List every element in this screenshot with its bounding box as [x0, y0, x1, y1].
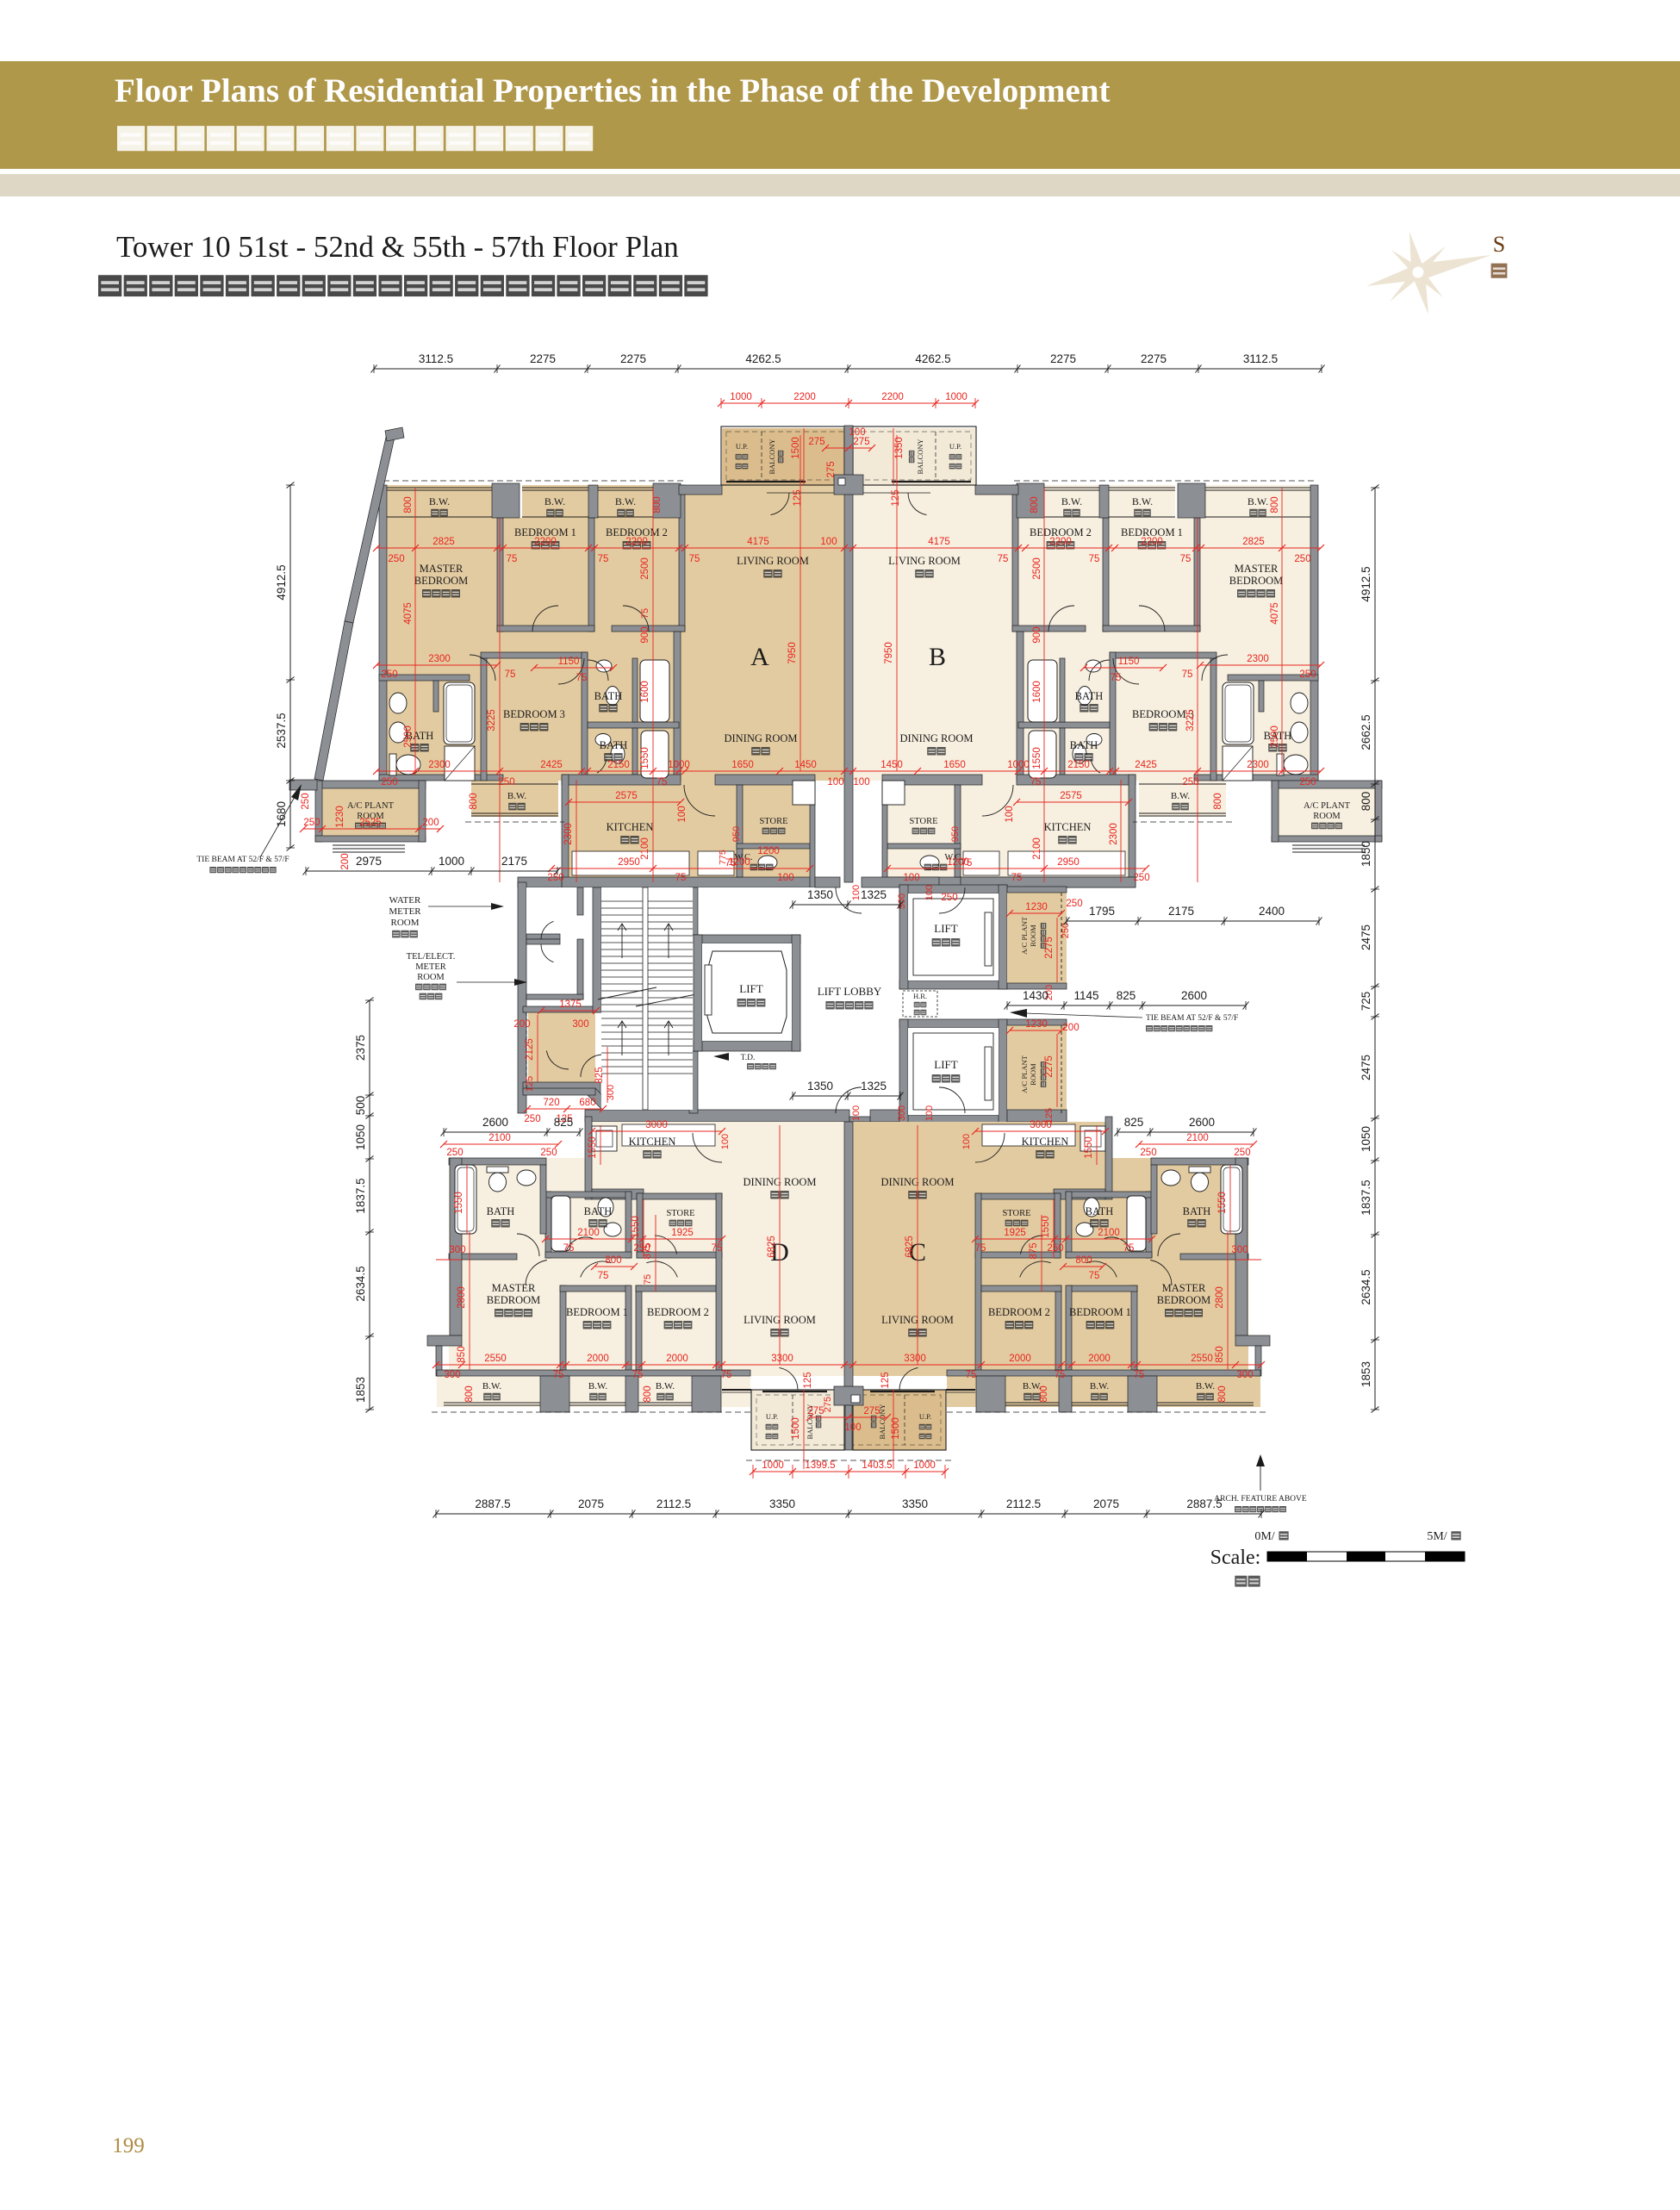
- svg-text:BATH: BATH: [600, 739, 628, 751]
- svg-text:275: 275: [807, 1406, 824, 1416]
- svg-text:250: 250: [381, 777, 397, 788]
- svg-text:100: 100: [853, 777, 869, 788]
- svg-text:1000: 1000: [913, 1460, 936, 1471]
- svg-text:800: 800: [469, 793, 479, 809]
- svg-text:75: 75: [966, 1370, 977, 1380]
- svg-text:6825: 6825: [905, 1236, 915, 1258]
- svg-text:1550: 1550: [1084, 1136, 1094, 1159]
- svg-text:1925: 1925: [1004, 1228, 1026, 1238]
- svg-text:75: 75: [598, 1271, 609, 1281]
- svg-text:75: 75: [1111, 673, 1122, 683]
- svg-text:LIFT LOBBY: LIFT LOBBY: [818, 985, 882, 998]
- svg-text:2075: 2075: [1093, 1497, 1119, 1510]
- svg-text:B.W.: B.W.: [1171, 791, 1190, 801]
- svg-text:1230: 1230: [1025, 902, 1048, 912]
- svg-text:100: 100: [820, 537, 837, 547]
- svg-text:2275: 2275: [620, 352, 646, 365]
- svg-text:100: 100: [677, 806, 688, 822]
- svg-text:2300: 2300: [1247, 760, 1269, 770]
- svg-text:ROOM: ROOM: [417, 973, 445, 982]
- svg-text:ARCH. FEATURE ABOVE: ARCH. FEATURE ABOVE: [1214, 1495, 1307, 1503]
- svg-text:7950: 7950: [787, 642, 798, 664]
- svg-text:4912.5: 4912.5: [275, 564, 288, 600]
- svg-text:250: 250: [547, 873, 563, 883]
- svg-text:0M/: 0M/: [1254, 1530, 1274, 1543]
- svg-text:75: 75: [675, 873, 687, 883]
- svg-text:250: 250: [1299, 669, 1316, 680]
- svg-text:2100: 2100: [1032, 837, 1042, 860]
- svg-text:250: 250: [381, 669, 397, 680]
- svg-text:1399.5: 1399.5: [805, 1460, 835, 1471]
- svg-text:3350: 3350: [769, 1497, 795, 1510]
- svg-text:2634.5: 2634.5: [354, 1266, 367, 1301]
- svg-text:1837.5: 1837.5: [354, 1178, 367, 1213]
- svg-text:BATH: BATH: [594, 690, 623, 702]
- svg-text:B.W.: B.W.: [656, 1381, 675, 1391]
- svg-text:BATH: BATH: [1086, 1205, 1114, 1217]
- svg-text:BATH: BATH: [1183, 1205, 1211, 1217]
- svg-text:75: 75: [721, 1370, 732, 1380]
- svg-text:T.D.: T.D.: [741, 1054, 756, 1062]
- svg-text:300: 300: [449, 1245, 465, 1255]
- svg-text:75: 75: [553, 1370, 564, 1380]
- svg-text:1853: 1853: [1360, 1361, 1372, 1387]
- svg-text:U.P.: U.P.: [919, 1412, 931, 1421]
- svg-text:Scale:: Scale:: [1210, 1547, 1261, 1569]
- svg-text:2825: 2825: [432, 537, 455, 547]
- svg-text:1000: 1000: [1007, 760, 1030, 770]
- svg-text:199: 199: [112, 2134, 145, 2157]
- svg-text:1150: 1150: [1118, 657, 1140, 667]
- svg-text:125: 125: [803, 1372, 813, 1388]
- svg-text:300: 300: [897, 1105, 907, 1121]
- svg-text:2887.5: 2887.5: [475, 1497, 510, 1510]
- svg-text:250: 250: [388, 554, 404, 564]
- svg-text:1500: 1500: [891, 1417, 901, 1440]
- svg-text:B.W.: B.W.: [1196, 1381, 1215, 1391]
- svg-text:825: 825: [1124, 1116, 1144, 1129]
- svg-text:B.W.: B.W.: [1090, 1381, 1109, 1391]
- svg-text:1050: 1050: [354, 1124, 367, 1150]
- svg-text:200: 200: [340, 853, 351, 869]
- svg-text:ROOM: ROOM: [390, 918, 419, 928]
- svg-text:B.W.: B.W.: [544, 495, 565, 507]
- svg-text:75: 75: [1123, 1243, 1135, 1254]
- svg-text:B.W.: B.W.: [1061, 495, 1082, 507]
- svg-text:100: 100: [961, 1134, 972, 1149]
- svg-text:1000: 1000: [762, 1460, 784, 1471]
- svg-text:2100: 2100: [577, 1228, 600, 1238]
- svg-text:BEDROOM: BEDROOM: [1229, 575, 1284, 587]
- svg-text:1403.5: 1403.5: [862, 1460, 892, 1471]
- svg-text:275: 275: [826, 461, 837, 477]
- svg-text:BALCONY: BALCONY: [768, 439, 776, 474]
- svg-text:725: 725: [1360, 992, 1372, 1012]
- svg-text:250: 250: [301, 793, 311, 809]
- svg-text:300: 300: [572, 1019, 588, 1030]
- svg-text:LIFT: LIFT: [934, 922, 958, 935]
- svg-text:2950: 2950: [1057, 857, 1080, 868]
- svg-text:900: 900: [1032, 626, 1042, 643]
- svg-text:1680: 1680: [275, 801, 288, 827]
- svg-text:200: 200: [422, 818, 439, 828]
- svg-text:2475: 2475: [1360, 1055, 1372, 1080]
- svg-text:2112.5: 2112.5: [1006, 1497, 1041, 1510]
- svg-text:2500: 2500: [403, 725, 414, 748]
- svg-text:DINING ROOM: DINING ROOM: [724, 732, 797, 744]
- svg-text:250: 250: [1066, 899, 1082, 909]
- svg-text:2825: 2825: [1242, 537, 1265, 547]
- svg-text:125: 125: [1044, 1108, 1055, 1124]
- svg-text:800: 800: [643, 1385, 653, 1402]
- svg-text:STORE: STORE: [1002, 1209, 1030, 1218]
- svg-text:2537.5: 2537.5: [275, 713, 288, 748]
- svg-text:300: 300: [444, 1370, 460, 1380]
- svg-text:Tower 10 51st - 52nd & 55th -: Tower 10 51st - 52nd & 55th - 57th Floor…: [116, 230, 679, 264]
- svg-text:4075: 4075: [403, 602, 414, 625]
- svg-text:1550: 1550: [1032, 747, 1042, 769]
- svg-text:875: 875: [1029, 1242, 1039, 1259]
- svg-text:1925: 1925: [671, 1228, 694, 1238]
- svg-text:800: 800: [1213, 793, 1223, 809]
- svg-text:1200: 1200: [757, 846, 780, 856]
- svg-text:2800: 2800: [457, 1286, 467, 1309]
- svg-text:950: 950: [950, 826, 961, 842]
- svg-text:100: 100: [720, 1134, 731, 1149]
- svg-text:1550: 1550: [454, 1192, 464, 1214]
- svg-text:3225: 3225: [1185, 709, 1196, 731]
- svg-text:250: 250: [1299, 777, 1316, 788]
- svg-text:2275: 2275: [1044, 937, 1055, 959]
- svg-text:75: 75: [1089, 1271, 1100, 1281]
- svg-text:100: 100: [827, 777, 843, 788]
- svg-text:2400: 2400: [1259, 905, 1285, 918]
- svg-text:BEDROOM 2: BEDROOM 2: [988, 1306, 1050, 1318]
- svg-text:250: 250: [303, 818, 320, 828]
- svg-text:2300: 2300: [1109, 823, 1119, 845]
- svg-text:LIVING ROOM: LIVING ROOM: [888, 555, 961, 567]
- svg-text:2100: 2100: [640, 837, 650, 860]
- svg-text:B: B: [929, 643, 946, 671]
- svg-text:125: 125: [793, 489, 803, 506]
- svg-text:1550: 1550: [1041, 1216, 1051, 1238]
- svg-text:800: 800: [464, 1385, 475, 1402]
- svg-text:950: 950: [731, 826, 742, 842]
- svg-text:250: 250: [524, 1114, 540, 1124]
- svg-text:2575: 2575: [615, 791, 638, 801]
- svg-text:2200: 2200: [793, 392, 816, 402]
- svg-text:2375: 2375: [354, 1035, 367, 1061]
- svg-text:ROOM: ROOM: [1029, 924, 1037, 947]
- svg-text:TIE BEAM AT 52/F & 57/F: TIE BEAM AT 52/F & 57/F: [196, 856, 289, 864]
- svg-text:800: 800: [605, 1255, 621, 1266]
- svg-text:BEDROOM 1: BEDROOM 1: [566, 1306, 628, 1318]
- svg-text:2575: 2575: [1060, 791, 1082, 801]
- svg-text:TIE BEAM AT 52/F & 57/F: TIE BEAM AT 52/F & 57/F: [1146, 1014, 1238, 1023]
- svg-text:75: 75: [725, 858, 737, 868]
- svg-text:4075: 4075: [1270, 602, 1280, 625]
- svg-text:250: 250: [446, 1148, 463, 1158]
- svg-text:1350: 1350: [807, 1080, 833, 1093]
- svg-text:A/C PLANT: A/C PLANT: [347, 801, 395, 811]
- svg-text:250: 250: [1133, 873, 1149, 883]
- svg-text:MASTER: MASTER: [1235, 563, 1279, 575]
- svg-text:250: 250: [1140, 1148, 1156, 1158]
- svg-text:2600: 2600: [482, 1116, 508, 1129]
- svg-text:800: 800: [1039, 1385, 1049, 1402]
- svg-text:100: 100: [924, 1105, 935, 1121]
- svg-text:BEDROOM: BEDROOM: [487, 1294, 541, 1306]
- svg-text:6825: 6825: [767, 1236, 777, 1258]
- svg-text:850: 850: [457, 1346, 467, 1362]
- svg-text:2100: 2100: [1186, 1133, 1209, 1143]
- svg-text:A/C PLANT: A/C PLANT: [1304, 801, 1351, 811]
- svg-text:2200: 2200: [534, 537, 557, 547]
- svg-text:75: 75: [598, 554, 609, 564]
- svg-text:A: A: [750, 643, 769, 671]
- svg-text:2200: 2200: [1141, 537, 1163, 547]
- svg-text:75: 75: [1030, 777, 1042, 788]
- svg-text:1000: 1000: [439, 855, 464, 868]
- svg-text:500: 500: [354, 1096, 367, 1116]
- svg-text:BEDROOM: BEDROOM: [414, 575, 469, 587]
- svg-text:1000: 1000: [945, 392, 968, 402]
- svg-text:B.W.: B.W.: [507, 791, 526, 801]
- svg-text:3000: 3000: [645, 1120, 668, 1130]
- svg-text:A/C PLANT: A/C PLANT: [1020, 1055, 1029, 1093]
- svg-text:BATH: BATH: [487, 1205, 515, 1217]
- svg-text:125: 125: [525, 1076, 535, 1092]
- svg-text:BEDROOM 3: BEDROOM 3: [503, 708, 565, 720]
- svg-text:75: 75: [656, 777, 668, 788]
- svg-text:300: 300: [1231, 1245, 1248, 1255]
- svg-text:1500: 1500: [791, 1417, 801, 1440]
- svg-text:250: 250: [941, 893, 957, 903]
- svg-text:2275: 2275: [1050, 352, 1076, 365]
- svg-text:2975: 2975: [356, 855, 382, 868]
- svg-text:680: 680: [579, 1098, 595, 1108]
- svg-text:875: 875: [643, 1242, 653, 1259]
- svg-text:1550: 1550: [631, 1216, 641, 1238]
- svg-text:S: S: [1493, 232, 1505, 257]
- svg-text:3300: 3300: [771, 1354, 793, 1364]
- svg-text:3225: 3225: [487, 709, 497, 731]
- svg-text:800: 800: [1075, 1255, 1092, 1266]
- svg-text:2500: 2500: [640, 557, 650, 580]
- svg-text:MASTER: MASTER: [492, 1282, 536, 1294]
- svg-text:2887.5: 2887.5: [1186, 1497, 1222, 1510]
- svg-text:2275: 2275: [530, 352, 556, 365]
- svg-text:1850: 1850: [1360, 841, 1372, 867]
- svg-text:U.P.: U.P.: [949, 442, 961, 451]
- svg-text:BATH: BATH: [584, 1205, 613, 1217]
- svg-text:KITCHEN: KITCHEN: [607, 821, 654, 833]
- svg-text:75: 75: [1182, 669, 1193, 680]
- svg-text:800: 800: [1217, 1385, 1228, 1402]
- svg-text:A/C PLANT: A/C PLANT: [1020, 916, 1029, 954]
- svg-text:2500: 2500: [1270, 725, 1280, 748]
- svg-text:1000: 1000: [730, 392, 752, 402]
- svg-text:825: 825: [554, 1116, 574, 1129]
- svg-text:2000: 2000: [1009, 1354, 1031, 1364]
- svg-text:METER: METER: [415, 962, 446, 972]
- svg-text:1375: 1375: [559, 999, 582, 1010]
- svg-text:1500: 1500: [791, 437, 801, 459]
- svg-text:2000: 2000: [666, 1354, 688, 1364]
- svg-text:2600: 2600: [1181, 989, 1207, 1002]
- svg-text:2550: 2550: [1191, 1354, 1213, 1364]
- svg-text:2000: 2000: [1088, 1354, 1111, 1364]
- svg-text:2525: 2525: [359, 818, 382, 828]
- svg-text:METER: METER: [389, 906, 421, 917]
- svg-text:BALCONY: BALCONY: [916, 439, 924, 474]
- svg-text:75: 75: [507, 554, 518, 564]
- svg-text:800: 800: [652, 496, 663, 513]
- svg-text:2475: 2475: [1360, 924, 1372, 950]
- svg-text:B.W.: B.W.: [429, 495, 450, 507]
- svg-text:1837.5: 1837.5: [1360, 1180, 1372, 1215]
- svg-text:DINING ROOM: DINING ROOM: [899, 732, 973, 744]
- svg-text:3112.5: 3112.5: [419, 352, 453, 365]
- svg-text:275: 275: [863, 1406, 880, 1416]
- svg-text:1325: 1325: [861, 1080, 887, 1093]
- svg-text:LIFT: LIFT: [934, 1058, 958, 1071]
- svg-text:75: 75: [563, 1243, 575, 1254]
- svg-text:1450: 1450: [794, 760, 817, 770]
- svg-text:2300: 2300: [428, 760, 451, 770]
- svg-text:2200: 2200: [625, 537, 648, 547]
- svg-text:75: 75: [712, 1243, 723, 1254]
- svg-text:BEDROOM 1: BEDROOM 1: [1069, 1306, 1131, 1318]
- svg-text:2150: 2150: [607, 760, 630, 770]
- svg-text:H.R.: H.R.: [913, 992, 927, 1000]
- svg-text:125: 125: [880, 1372, 891, 1388]
- svg-text:75: 75: [1134, 1370, 1145, 1380]
- svg-text:2550: 2550: [484, 1354, 507, 1364]
- svg-text:1795: 1795: [1089, 905, 1115, 918]
- svg-text:MASTER: MASTER: [420, 563, 464, 575]
- svg-text:1853: 1853: [354, 1377, 367, 1403]
- svg-text:75: 75: [998, 554, 1009, 564]
- svg-text:75: 75: [640, 608, 650, 619]
- svg-text:STORE: STORE: [909, 817, 937, 826]
- svg-text:3112.5: 3112.5: [1243, 352, 1278, 365]
- svg-text:1230: 1230: [335, 806, 345, 828]
- svg-text:1450: 1450: [880, 760, 903, 770]
- svg-text:100: 100: [777, 873, 793, 883]
- svg-text:TEL/ELECT.: TEL/ELECT.: [407, 952, 456, 962]
- svg-text:1550: 1550: [588, 1136, 598, 1159]
- svg-text:STORE: STORE: [759, 817, 787, 826]
- svg-text:BATH: BATH: [1075, 690, 1104, 702]
- svg-text:2112.5: 2112.5: [656, 1497, 691, 1510]
- svg-text:275: 275: [823, 1397, 833, 1412]
- svg-text:75: 75: [505, 669, 516, 680]
- svg-text:1600: 1600: [640, 681, 650, 703]
- svg-text:75: 75: [1180, 554, 1192, 564]
- svg-text:MASTER: MASTER: [1162, 1282, 1206, 1294]
- svg-text:1350: 1350: [894, 437, 905, 459]
- svg-text:800: 800: [1360, 792, 1372, 812]
- svg-text:75: 75: [975, 1243, 986, 1254]
- svg-text:B.W.: B.W.: [588, 1381, 607, 1391]
- svg-text:U.P.: U.P.: [736, 442, 748, 451]
- svg-text:300: 300: [1236, 1370, 1253, 1380]
- svg-text:250: 250: [540, 1148, 557, 1158]
- svg-text:2800: 2800: [1215, 1286, 1225, 1309]
- svg-text:75: 75: [1089, 554, 1100, 564]
- svg-text:250: 250: [1047, 1243, 1063, 1254]
- svg-text:1550: 1550: [1217, 1192, 1228, 1214]
- svg-text:B.W.: B.W.: [1248, 495, 1268, 507]
- svg-text:3300: 3300: [904, 1354, 926, 1364]
- svg-text:4912.5: 4912.5: [1360, 566, 1372, 601]
- svg-text:100: 100: [849, 427, 865, 438]
- svg-text:1650: 1650: [943, 760, 966, 770]
- svg-text:250: 250: [1234, 1148, 1250, 1158]
- svg-text:2200: 2200: [1049, 537, 1072, 547]
- svg-text:2125: 2125: [525, 1038, 535, 1061]
- svg-text:1430: 1430: [1023, 989, 1048, 1002]
- svg-text:250: 250: [1182, 777, 1198, 788]
- svg-text:1325: 1325: [861, 888, 887, 901]
- svg-text:LIFT: LIFT: [739, 982, 763, 995]
- svg-text:2175: 2175: [1168, 905, 1194, 918]
- svg-text:100: 100: [844, 1422, 861, 1433]
- svg-text:2300: 2300: [428, 654, 451, 664]
- svg-text:WATER: WATER: [389, 895, 421, 906]
- svg-text:800: 800: [1030, 496, 1040, 513]
- svg-text:1650: 1650: [731, 760, 754, 770]
- svg-text:2100: 2100: [488, 1133, 511, 1143]
- svg-text:800: 800: [1270, 496, 1280, 513]
- svg-text:2425: 2425: [540, 760, 563, 770]
- svg-text:1145: 1145: [1073, 989, 1098, 1002]
- svg-text:BEDROOM 2: BEDROOM 2: [647, 1306, 709, 1318]
- svg-text:850: 850: [1215, 1346, 1225, 1362]
- svg-text:75: 75: [961, 858, 973, 868]
- svg-text:ROOM: ROOM: [1313, 812, 1341, 821]
- svg-text:B.W.: B.W.: [615, 495, 636, 507]
- svg-text:100: 100: [924, 885, 935, 900]
- svg-text:720: 720: [543, 1098, 559, 1108]
- svg-text:1000: 1000: [668, 760, 690, 770]
- svg-text:825: 825: [1117, 989, 1136, 1002]
- svg-text:825: 825: [594, 1067, 605, 1083]
- svg-text:7950: 7950: [884, 642, 894, 664]
- svg-text:B.W.: B.W.: [482, 1381, 501, 1391]
- svg-text:Floor Plans of Residential Pro: Floor Plans of Residential Properties in…: [115, 72, 1110, 109]
- svg-text:1600: 1600: [1032, 681, 1042, 703]
- svg-text:KITCHEN: KITCHEN: [1044, 821, 1092, 833]
- svg-text:75: 75: [643, 1274, 653, 1285]
- svg-text:200: 200: [513, 1019, 530, 1030]
- svg-text:800: 800: [403, 496, 414, 513]
- svg-text:75: 75: [1011, 873, 1023, 883]
- svg-text:2275: 2275: [1141, 352, 1167, 365]
- svg-text:900: 900: [640, 626, 650, 643]
- svg-text:B.W.: B.W.: [1132, 495, 1153, 507]
- svg-text:275: 275: [808, 437, 824, 447]
- svg-text:KITCHEN: KITCHEN: [1022, 1136, 1069, 1148]
- svg-text:4175: 4175: [747, 537, 769, 547]
- svg-text:250: 250: [1294, 554, 1310, 564]
- svg-text:2634.5: 2634.5: [1360, 1269, 1372, 1304]
- svg-text:2950: 2950: [618, 857, 640, 868]
- svg-text:100: 100: [1005, 806, 1015, 822]
- svg-text:100: 100: [903, 873, 919, 883]
- svg-text:BATH: BATH: [1070, 739, 1098, 751]
